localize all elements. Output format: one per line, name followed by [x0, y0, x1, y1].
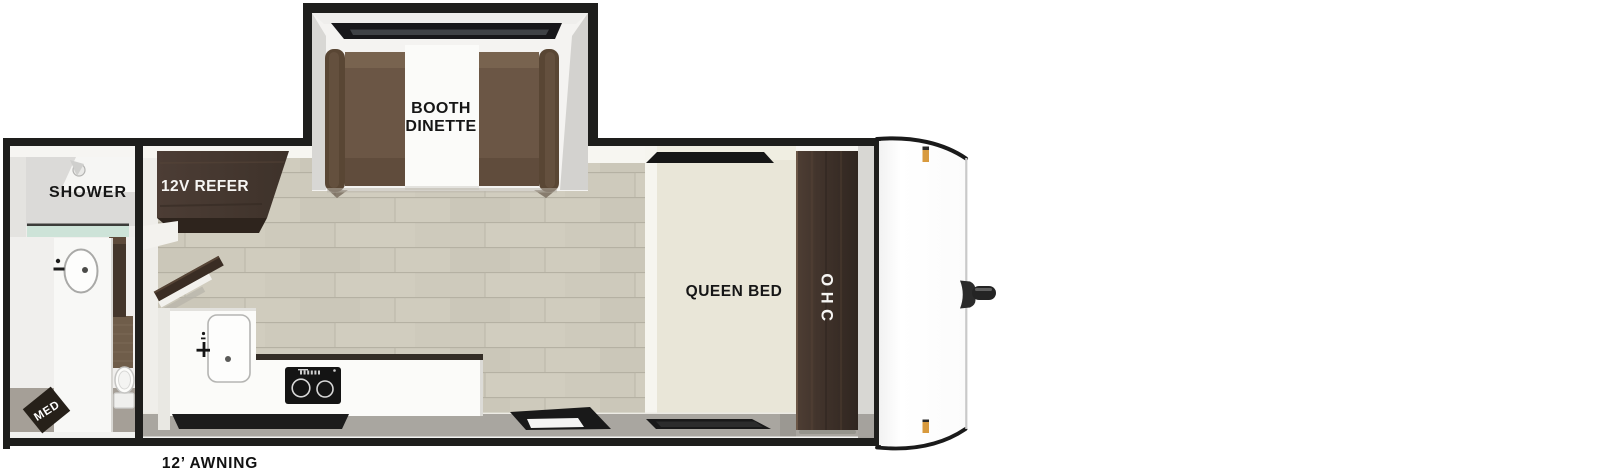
svg-text:12’ AWNING: 12’ AWNING	[162, 455, 258, 469]
svg-text:DINETTE: DINETTE	[405, 118, 476, 135]
svg-text:OHC: OHC	[818, 273, 836, 326]
svg-text:SHOWER: SHOWER	[49, 184, 127, 201]
svg-text:12V REFER: 12V REFER	[161, 178, 249, 195]
svg-text:BOOTH: BOOTH	[411, 100, 471, 117]
svg-text:QUEEN BED: QUEEN BED	[686, 283, 783, 300]
